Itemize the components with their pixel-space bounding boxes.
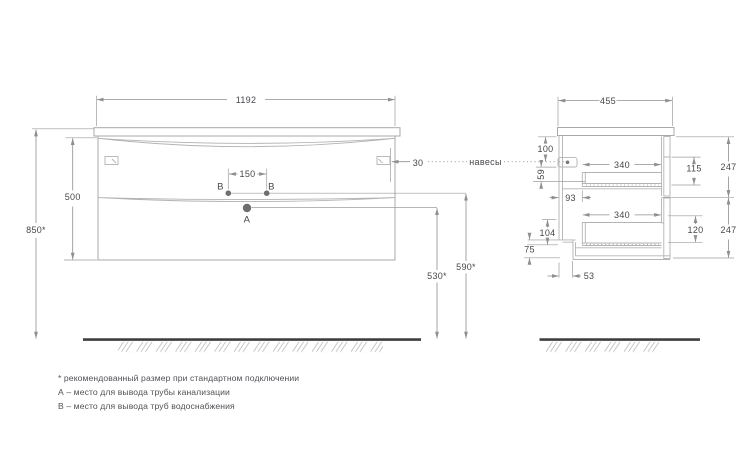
svg-text:340: 340 xyxy=(614,160,630,170)
svg-text:530*: 530* xyxy=(427,271,447,281)
dim-drain-height: 530* xyxy=(424,208,449,338)
basin-lip-curve xyxy=(98,138,395,146)
drawing-canvas: 1192 850* 500 150 30 xyxy=(0,0,750,450)
dim-top-to-hanger: 100 xyxy=(537,137,557,161)
svg-text:120: 120 xyxy=(688,225,704,235)
dim-lower-drawer-depth: 340 xyxy=(583,210,661,220)
dim-supply-height: 590* xyxy=(453,194,478,339)
footnote-point-b: В – место для вывода труб водоснабжения xyxy=(58,400,299,414)
svg-text:100: 100 xyxy=(538,144,554,154)
dim-upper-drawer-inner: 115 xyxy=(672,157,702,185)
hanger-right xyxy=(377,148,391,182)
footnote-point-a: А – место для вывода трубы канализации xyxy=(58,386,299,400)
svg-text:850*: 850* xyxy=(26,225,46,235)
dim-side-depth: 455 xyxy=(558,96,673,126)
side-view: 455 100 59 93 340 xyxy=(524,96,736,281)
drawer-divider-curve xyxy=(98,198,395,202)
floor-front xyxy=(83,340,421,353)
footnote-recommended-size: * рекомендованный размер при стандартном… xyxy=(58,372,299,386)
floor-hatch-side xyxy=(543,342,659,353)
dim-upper-drawer-depth: 340 xyxy=(583,160,661,170)
dim-notch-depth: 53 xyxy=(548,261,595,281)
hanger-bracket-side xyxy=(558,158,577,167)
washbasin-top-side xyxy=(558,128,675,136)
svg-text:75: 75 xyxy=(524,244,535,254)
dim-supply-spacing: 150 xyxy=(228,169,266,190)
svg-text:53: 53 xyxy=(584,271,595,281)
upper-drawer-box xyxy=(563,173,662,189)
cabinet-body-front xyxy=(98,136,395,260)
dim-front-total-height: 850* xyxy=(24,129,95,339)
label-point-b-right: В xyxy=(268,182,275,193)
dim-back-offset: 93 xyxy=(550,191,592,203)
front-view: 1192 850* 500 150 30 xyxy=(24,95,479,339)
dim-front-cabinet-height: 500 xyxy=(62,138,97,260)
footnotes: * рекомендованный размер при стандартном… xyxy=(58,372,299,413)
washbasin-top-front xyxy=(94,128,400,136)
svg-text:247: 247 xyxy=(721,225,737,235)
dim-lower-front-height: 247 xyxy=(673,198,736,258)
drain-point xyxy=(243,204,251,212)
floor-side xyxy=(540,340,701,353)
lower-drawer-front xyxy=(662,198,671,259)
svg-text:455: 455 xyxy=(600,96,616,106)
svg-text:115: 115 xyxy=(686,164,701,174)
svg-text:150: 150 xyxy=(240,169,256,179)
hangers-callout: навесы xyxy=(428,157,566,167)
svg-text:500: 500 xyxy=(65,192,81,202)
svg-text:590*: 590* xyxy=(456,262,476,272)
floor-hatch-front xyxy=(118,342,383,353)
lower-drawer-box xyxy=(576,223,662,248)
svg-text:104: 104 xyxy=(540,228,556,238)
dim-hanger-inset: 30 xyxy=(392,158,424,168)
svg-text:30: 30 xyxy=(413,158,424,168)
supply-point-left xyxy=(226,190,232,196)
hangers-label: навесы xyxy=(469,157,501,167)
dim-lower-drawer-inner: 120 xyxy=(668,216,703,243)
svg-text:1192: 1192 xyxy=(236,95,257,105)
label-point-b-left: В xyxy=(217,182,224,193)
svg-text:340: 340 xyxy=(614,210,630,220)
dim-bottom-back-offset: 104 xyxy=(540,219,557,244)
dim-plinth-height: 75 xyxy=(524,234,535,264)
svg-text:247: 247 xyxy=(721,162,737,172)
back-panel xyxy=(559,136,563,241)
dim-front-width: 1192 xyxy=(97,95,396,126)
upper-drawer-front xyxy=(662,137,671,197)
svg-text:59: 59 xyxy=(536,169,546,180)
svg-text:93: 93 xyxy=(565,193,576,203)
hanger-left xyxy=(105,157,118,165)
label-point-a: А xyxy=(244,215,251,226)
